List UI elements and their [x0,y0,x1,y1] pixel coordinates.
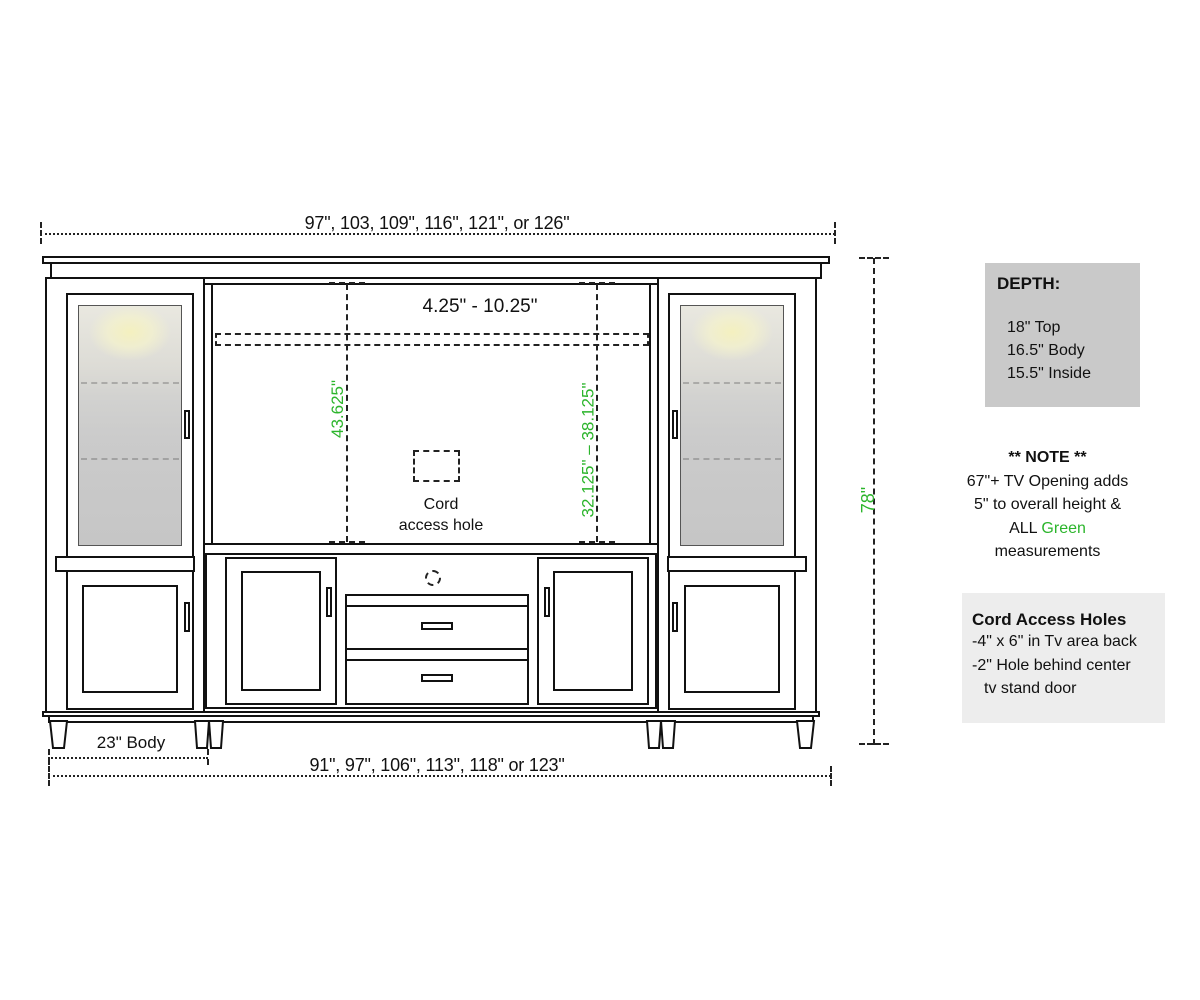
left-opening-height-label: 43.625" [328,334,350,484]
depth-item-inside: 15.5" Inside [1007,362,1140,385]
console-right-door-handle [544,587,550,617]
note-line3: ALL Green [935,517,1160,541]
glass-shelf-line [81,458,179,460]
console-drawer-bottom-handle [421,674,453,682]
cord-access-hole-label-line1: Cord [366,496,516,514]
left-glass-panel [78,305,182,546]
console-left-door-handle [326,587,332,617]
tv-opening-left-stile [211,283,213,545]
note-line4: measurements [935,540,1160,564]
leg [797,721,814,748]
cord-panel-line2: -2" Hole behind center [972,654,1165,678]
console-drawer-bottom [345,659,529,705]
cord-panel-title: Cord Access Holes [972,610,1165,630]
glass-shelf-line [683,458,781,460]
height-dim-tick-bottom [859,743,889,745]
leg [661,721,675,748]
bottom-width-dimension-line [48,775,831,777]
glass-shelf-line [683,382,781,384]
note-block: ** NOTE ** 67"+ TV Opening adds 5" to ov… [935,446,1160,564]
right-lower-door-handle [672,602,678,632]
cord-panel-line3: tv stand door [984,677,1165,701]
console-cord-hole-outline [425,570,441,586]
right-glass-door-handle [672,410,678,439]
depth-item-top: 18" Top [1007,316,1140,339]
tv-opening-right-stile [649,283,651,545]
cord-panel-line1: -4" x 6" in Tv area back [972,630,1165,654]
depth-item-body: 16.5" Body [1007,339,1140,362]
note-line3-prefix: ALL [1009,520,1041,537]
leg [647,721,661,748]
cord-access-hole-outline [413,450,460,482]
cord-access-panel: Cord Access Holes -4" x 6" in Tv area ba… [962,593,1165,723]
note-line3-green-word: Green [1041,520,1085,537]
right-opening-height-label: 32.125" – 38.125" [579,363,601,538]
right-glass-panel [680,305,784,546]
right-lower-door-panel [684,585,780,693]
bottom-width-dimension-label: 91", 97", 106", 113", 118" or 123" [137,755,737,776]
adjustable-shelf-dashed-strip [215,333,649,346]
glass-shelf-line [81,382,179,384]
leg [209,721,223,748]
console-drawer-top-handle [421,622,453,630]
body-dim-tick-left [48,749,50,765]
body-width-label: 23" Body [56,733,206,753]
top-dim-tick-right [834,222,836,244]
bottom-dim-tick-right [830,766,832,786]
top-width-dimension-line [40,233,835,235]
top-dim-tick-left [40,222,42,244]
note-title: ** NOTE ** [935,446,1160,470]
note-line2: 5" to overall height & [935,493,1160,517]
bottom-dim-tick-left [48,766,50,786]
left-lower-door-handle [184,602,190,632]
left-glass-door-handle [184,410,190,439]
cord-access-hole-label-line2: access hole [366,517,516,535]
left-lower-door-panel [82,585,178,693]
top-width-dimension-label: 97", 103, 109", 116", 121", or 126" [137,213,737,234]
overall-height-label: 78" [858,470,880,530]
console-left-door-panel [241,571,321,691]
depth-panel: DEPTH: 18" Top 16.5" Body 15.5" Inside [985,263,1140,407]
depth-panel-title: DEPTH: [997,274,1140,294]
entertainment-center-spec-diagram: 97", 103, 109", 116", 121", or 126" 4.25… [0,0,1200,1000]
console-right-door-panel [553,571,633,691]
note-line1: 67"+ TV Opening adds [935,470,1160,494]
tv-top-gap-label: 4.25" - 10.25" [380,296,580,318]
